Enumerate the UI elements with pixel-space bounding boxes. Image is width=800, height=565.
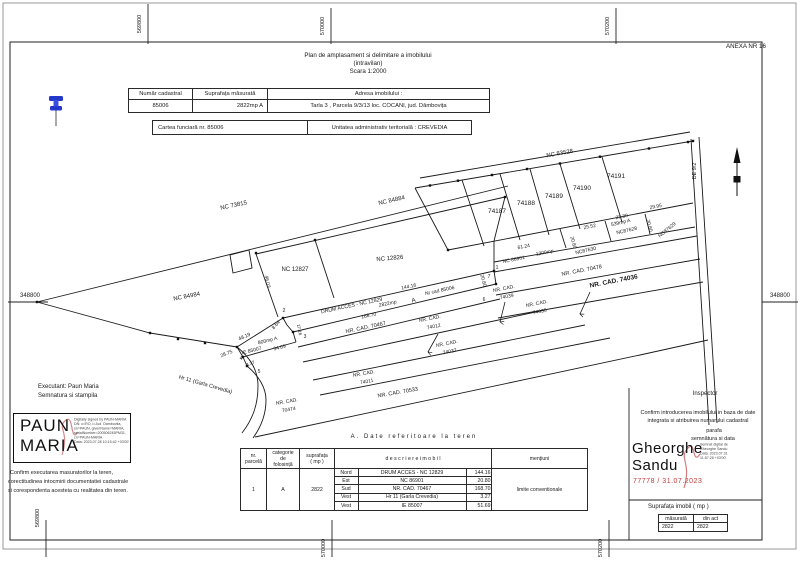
uat-cell: Unitatea administrativ teritorială : CRE… (308, 120, 472, 135)
label-de-9-2: DE 9/2 (692, 163, 698, 180)
inspector-parafa-label: parafa (664, 428, 764, 434)
parcel-74188: 74188 (517, 200, 535, 207)
side-description: NR. CAD. 70467 (359, 485, 466, 492)
id-header-adresa: Adresa imobilului : (268, 88, 490, 100)
inspector-name-l1: Gheorghe (632, 440, 703, 457)
side-description: DRUM ACCES - NC 12829 (359, 469, 466, 476)
inspector-stamp-number: 77778 / 31.07.2023 (633, 478, 702, 485)
parcel-74189: 74189 (545, 193, 563, 200)
label-nr-cad-85006: Nr cad 85006 (424, 285, 455, 297)
side-direction: Vest (335, 502, 359, 510)
anexa-label: ANEXA NR 16 (716, 43, 776, 50)
executant-confirm-line3: si corespondenta acesteia cu realitatea … (8, 488, 128, 494)
label-nc-12826: NC 12826 (376, 255, 404, 263)
terrain-header-mentiuni: mențiuni (492, 448, 588, 469)
inspector-confirm-line2: integrata si atribuirea numarului cadast… (633, 418, 763, 424)
label-nrcad-74012-l2: 74012 (426, 323, 441, 332)
coord-left-348800: 348800 (20, 293, 41, 299)
id-header-numar-cadastral: Număr cadastral (128, 88, 193, 100)
terrain-row-mentiuni: limite conventionale (492, 469, 588, 511)
label-nrcad-70467: NR. CAD. 70467 (345, 321, 386, 335)
label-nrcad-70474-l2: 70474 (281, 406, 296, 414)
terrain-header-nr-l2: parcelă (245, 459, 262, 465)
point-2: 2 (283, 308, 286, 314)
coord-right-348800: 348800 (770, 293, 791, 299)
label-hr-11: Hr 11 (Garla Crevedia) (178, 375, 233, 396)
label-nrcad-74036: NR. CAD. 74036 (589, 273, 639, 289)
label-nc87628: NC87628 (616, 226, 638, 237)
area-value-masurata: 2822 (658, 523, 694, 532)
meas-48-19: 48.19 (238, 332, 252, 343)
side-direction: Sud (335, 485, 359, 492)
area-header-din-act: din act (694, 514, 728, 523)
point-1: 1 (496, 265, 499, 271)
parcel-74187: 74187 (488, 208, 506, 215)
point-4: 4 (240, 356, 243, 362)
terrain-table-title: A. Date referitoare la teren (240, 434, 588, 440)
label-800mp-a: 800mp A (257, 336, 278, 347)
plan-title: Plan de amplasament si delimitare a imob… (238, 52, 498, 77)
id-value-suprafata: 2822mp A (193, 100, 268, 113)
label-nrcad-74037-l2: 74037 (442, 348, 457, 357)
side-description: NC 86901 (359, 477, 466, 484)
meas-29-95: 29.95 (649, 203, 663, 211)
plan-title-line3: Scara 1:2000 (238, 68, 498, 76)
meas-8-64: 8.64 (271, 320, 282, 331)
id-value-numar-cadastral: 85006 (128, 100, 193, 113)
meas-168-70: 168.70 (361, 311, 377, 320)
terrain-row-categorie: A (267, 469, 300, 511)
digital-line: Data: 2023.07.28 10:15:42 +03'00' (74, 441, 131, 446)
coord-bottom-570200: 570200 (598, 539, 604, 557)
id-value-adresa: Tarla 3 , Parcela 9/3/13 loc. COCANI, ju… (268, 100, 490, 113)
label-1200mp: 1200mp (535, 248, 554, 257)
area-table: măsurată din act 2822 2822 (658, 514, 728, 532)
terrain-side-row: Sud NR. CAD. 70467 168.70 (335, 485, 492, 493)
plan-title-line1: Plan de amplasament si delimitare a imob… (238, 52, 498, 60)
terrain-table: nr. parcelă categorie de folosință supra… (240, 448, 588, 511)
point-6: 6 (483, 297, 486, 303)
meas-46-03: 46.03 (263, 275, 272, 289)
side-description: Hr 11 (Garla Crevedia) (359, 494, 466, 501)
coord-bottom-569800: 569800 (35, 509, 41, 527)
point-7: 7 (488, 274, 491, 280)
terrain-header-nr: nr. parcelă (240, 448, 267, 469)
side-description: IE 85007 (359, 502, 466, 510)
label-nc-73815: NC 73815 (220, 200, 248, 212)
side-length: 20.80 (466, 477, 492, 484)
inspector-title: Inspector (655, 391, 755, 397)
side-direction: Est (335, 477, 359, 484)
terrain-header-suprafata: suprafața ( mp ) (300, 448, 335, 469)
side-length: 144.16 (466, 469, 492, 476)
terrain-header-cat-l3: folosință (273, 462, 292, 468)
terrain-side-row: Est NC 86901 20.80 (335, 477, 492, 485)
terrain-row-descriere: Nord DRUM ACCES - NC 12829 144.16 Est NC… (335, 469, 492, 511)
label-a: A (411, 298, 416, 305)
coord-top-569800: 569800 (137, 15, 143, 33)
inspector-confirm-line1: Confirm introducerea imobilului in baza … (633, 410, 763, 416)
label-nrcad-74035-l2: 74035 (532, 308, 547, 317)
meas-20-80-c: 20.80 (478, 274, 487, 288)
terrain-side-row: Vest IE 85007 51.69 (335, 502, 492, 510)
side-direction: Nord (335, 469, 359, 476)
executant-stamp-name-l2: MARIA (20, 436, 79, 456)
label-nc-12827: NC 12827 (281, 267, 309, 273)
inspector-name-l2: Sandu (632, 457, 678, 474)
meas-3-27: 3.27 (245, 359, 255, 367)
coord-bottom-570000: 570000 (321, 539, 327, 557)
label-nc-83528: NC 83528 (546, 149, 574, 160)
parcel-74190: 74190 (573, 185, 591, 192)
executant-line1: Executant: Paun Maria (38, 384, 99, 390)
executant-confirm-line2: corectitudinea intocmirii documentatiei … (8, 479, 128, 485)
label-nc-84984: NC 84984 (173, 291, 201, 302)
id-header-suprafata: Suprafața măsurată (193, 88, 268, 100)
meas-20-80-a: 20.80 (568, 236, 577, 250)
meas-28-75: 28.75 (220, 349, 234, 359)
terrain-header-sup-l2: ( mp ) (310, 459, 324, 465)
point-5: 5 (258, 369, 261, 375)
label-nc-86901: NC 86901 (502, 255, 525, 265)
executant-confirm-line1: Confirm executarea masuratorilor la tere… (10, 470, 113, 476)
executant-stamp-box: PAUN MARIA Digitally signed by PAUN-MARI… (13, 413, 131, 463)
coord-top-570000: 570000 (320, 17, 326, 35)
terrain-header-descriere: d e s c r i e r e i m o b i l (335, 448, 492, 469)
digital-line: 11:57:28 +03'00' (700, 457, 760, 462)
terrain-side-row: Vest Hr 11 (Garla Crevedia) 3.27 (335, 494, 492, 502)
side-length: 3.27 (466, 494, 492, 501)
survey-points (36, 140, 694, 367)
meas-34-09: 34.09 (273, 344, 287, 353)
executant-stamp-name-l1: PAUN (20, 416, 70, 436)
area-table-title: Suprafața imobil ( mp ) (648, 504, 709, 510)
terrain-row-nr: 1 (240, 469, 267, 511)
cadastral-id-table: Număr cadastral Suprafața măsurată Adres… (128, 88, 490, 113)
pushpin-icon (49, 96, 63, 126)
meas-17-16: 17.16 (296, 324, 303, 337)
area-header-masurata: măsurată (658, 514, 694, 523)
inspector-digital-signature: Semnat digital de Gheorghe Sandu Data: 2… (700, 443, 760, 461)
meas-20-80-b: 20.80 (644, 219, 653, 233)
plan-title-line2: (intravilan) (238, 60, 498, 68)
executant-digital-signature: Digitally signed by PAUN-MARIA DN: c=RO,… (74, 418, 131, 445)
label-nrcad-70478: NR. CAD. 70478 (561, 264, 602, 278)
side-length: 168.70 (466, 485, 492, 492)
cadastral-plan-page: 5698005700005702005698005700005702003488… (0, 0, 800, 565)
side-length: 51.69 (466, 502, 492, 510)
label-nc-84884: NC 84884 (378, 195, 406, 207)
executant-line2: Semnatura si stampila (38, 393, 97, 399)
terrain-header-categorie: categorie de folosință (267, 448, 300, 469)
meas-61-24: 61.24 (517, 243, 531, 251)
label-nrcad-74039-l2: 74039 (499, 293, 514, 302)
meas-25-52: 25.52 (583, 223, 597, 231)
terrain-row-suprafata: 2822 (300, 469, 335, 511)
cartea-funciara-row: Cartea funciară nr. 85006 Unitatea admin… (152, 120, 472, 135)
area-value-din-act: 2822 (694, 523, 728, 532)
terrain-side-row: Nord DRUM ACCES - NC 12829 144.16 (335, 469, 492, 477)
coord-top-570200: 570200 (605, 17, 611, 35)
cartea-funciara-cell: Cartea funciară nr. 85006 (152, 120, 308, 135)
side-direction: Vest (335, 494, 359, 501)
north-arrow-icon (734, 147, 741, 196)
parcel-74191: 74191 (607, 173, 625, 180)
point-3: 3 (304, 334, 307, 340)
label-nrcad-70533: NR. CAD. 70533 (377, 387, 418, 400)
